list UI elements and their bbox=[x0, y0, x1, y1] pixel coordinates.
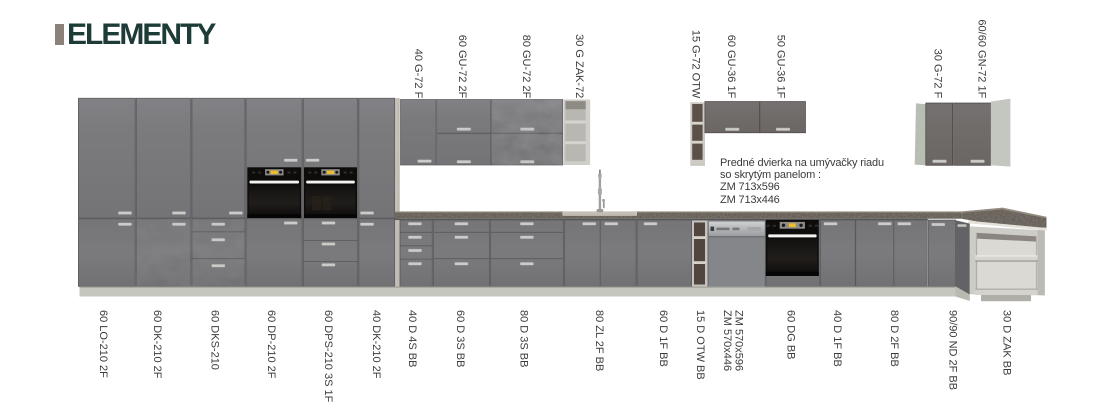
svg-text:60/60 GN-72 1F: 60/60 GN-72 1F bbox=[976, 19, 988, 98]
svg-text:ZM 570x446: ZM 570x446 bbox=[721, 310, 733, 371]
svg-text:40 DK-210 2F: 40 DK-210 2F bbox=[370, 310, 382, 379]
svg-text:30 G-72 F: 30 G-72 F bbox=[932, 49, 944, 99]
svg-text:60 LO-210 2F: 60 LO-210 2F bbox=[97, 310, 109, 378]
svg-text:80 ZL 2F BB: 80 ZL 2F BB bbox=[593, 310, 605, 371]
svg-text:15 G-72 OTW: 15 G-72 OTW bbox=[690, 30, 702, 99]
svg-text:80 D 2F BB: 80 D 2F BB bbox=[888, 310, 900, 367]
svg-text:15 D OTW BB: 15 D OTW BB bbox=[694, 310, 706, 380]
svg-text:60 DKS-210: 60 DKS-210 bbox=[209, 310, 221, 370]
svg-text:40 D 4S BB: 40 D 4S BB bbox=[406, 310, 418, 367]
svg-text:30 D ZAK BB: 30 D ZAK BB bbox=[1001, 310, 1013, 375]
svg-text:60 DG BB: 60 DG BB bbox=[785, 310, 797, 360]
svg-text:ZM 570x596: ZM 570x596 bbox=[733, 310, 745, 371]
svg-text:60 D 3S BB: 60 D 3S BB bbox=[454, 310, 466, 367]
svg-text:60 D 1F BB: 60 D 1F BB bbox=[657, 310, 669, 367]
svg-text:30 G ZAK-72: 30 G ZAK-72 bbox=[573, 34, 585, 98]
svg-text:40 G-72 F: 40 G-72 F bbox=[412, 49, 424, 99]
svg-text:40 D 1F BB: 40 D 1F BB bbox=[831, 310, 843, 367]
svg-text:80 GU-72 2F: 80 GU-72 2F bbox=[520, 35, 532, 99]
svg-text:60 DPS-210 3S 1F: 60 DPS-210 3S 1F bbox=[322, 310, 334, 403]
svg-text:60 DP-210 2F: 60 DP-210 2F bbox=[265, 310, 277, 379]
svg-text:60 GU-36 1F: 60 GU-36 1F bbox=[725, 35, 737, 99]
svg-text:60 GU-72 2F: 60 GU-72 2F bbox=[456, 35, 468, 99]
svg-text:80 D 3S BB: 80 D 3S BB bbox=[518, 310, 530, 367]
svg-text:60 DK-210 2F: 60 DK-210 2F bbox=[151, 310, 163, 379]
svg-text:50 GU-36 1F: 50 GU-36 1F bbox=[775, 35, 787, 99]
svg-text:90/90 ND 2F BB: 90/90 ND 2F BB bbox=[947, 310, 959, 390]
